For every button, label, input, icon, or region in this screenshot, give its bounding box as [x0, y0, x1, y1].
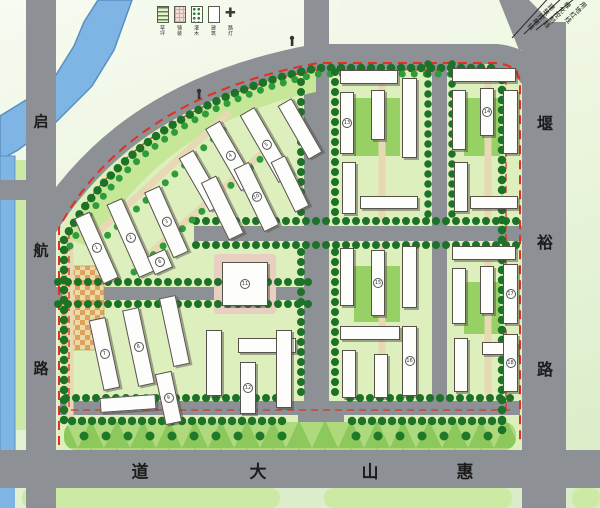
building [271, 155, 310, 212]
legend-label: 灌木 [193, 25, 200, 40]
building-number: 11 [240, 279, 250, 289]
legend-label: 草坪 [159, 25, 166, 40]
building-number: 13 [342, 118, 352, 128]
legend-label: 铺装 [176, 25, 183, 40]
building-number: 3 [160, 215, 173, 228]
building-number: 17 [506, 289, 516, 299]
legend-item-lawn: 草坪 [156, 6, 169, 40]
building [159, 295, 190, 367]
legend-label: 建筑 [210, 25, 217, 40]
building [470, 196, 518, 209]
building-number: 16 [405, 356, 415, 366]
building [454, 162, 468, 212]
building [371, 90, 385, 140]
building [276, 330, 292, 408]
building: 14 [480, 88, 494, 136]
legend: 草坪 铺装 灌木 建筑 ✚ 路灯 [156, 6, 237, 40]
building-number: 18 [506, 358, 516, 368]
building: 9 [155, 371, 182, 425]
building: 8 [122, 307, 155, 387]
building [402, 246, 417, 308]
building-swatch-icon [208, 6, 220, 23]
building [340, 70, 398, 84]
building: 15 [371, 250, 385, 316]
building [340, 248, 354, 306]
building [452, 68, 516, 82]
building [374, 354, 388, 398]
building: 13 [340, 92, 354, 154]
building-number: 4 [224, 149, 238, 163]
building [454, 338, 468, 392]
building [342, 350, 356, 398]
building-number: 7 [99, 348, 111, 360]
legend-item-paving: 铺装 [173, 6, 186, 40]
building: 12 [240, 362, 256, 414]
legend-item-shrub: 灌木 [190, 6, 203, 40]
building-number: 1 [90, 241, 103, 254]
building: 3 [144, 186, 189, 259]
building-number: 8 [133, 341, 145, 353]
building [402, 78, 417, 158]
building [480, 266, 494, 314]
building: 1 [74, 212, 119, 285]
building-number: 2 [124, 231, 137, 244]
building-number: 15 [373, 278, 383, 288]
building [452, 246, 516, 260]
building-number: 10 [250, 190, 263, 203]
building [452, 268, 466, 324]
building: 18 [503, 334, 518, 392]
building [360, 196, 418, 209]
legend-item-building: 建筑 [207, 6, 220, 40]
building [342, 162, 356, 214]
building: 16 [402, 326, 417, 396]
building-number: 14 [482, 107, 492, 117]
building [278, 98, 323, 160]
master-plan-canvas: 123456789101112131415161718 启航路堰裕路道大山惠 草… [0, 0, 600, 508]
building-number: 6 [153, 255, 166, 268]
building [503, 90, 518, 154]
legend-item-lamp: ✚ 路灯 [224, 6, 237, 40]
paving-swatch-icon [174, 6, 186, 23]
building [206, 330, 222, 396]
building [100, 394, 157, 413]
building [340, 326, 400, 340]
control-line-labels: 用地红线 绿化控制线 建筑控制线 [490, 0, 600, 70]
lawn-swatch-icon [157, 6, 169, 23]
building: 11 [222, 262, 268, 306]
building: 7 [89, 317, 121, 391]
building [452, 90, 466, 150]
building: 17 [503, 264, 518, 324]
lamp-swatch-icon: ✚ [225, 6, 237, 23]
legend-label: 路灯 [227, 25, 234, 40]
building-number: 12 [243, 383, 253, 393]
building-number: 5 [260, 138, 274, 152]
shrub-swatch-icon [191, 6, 203, 23]
buildings-layer: 123456789101112131415161718 [0, 0, 600, 508]
building-number: 9 [163, 392, 175, 404]
